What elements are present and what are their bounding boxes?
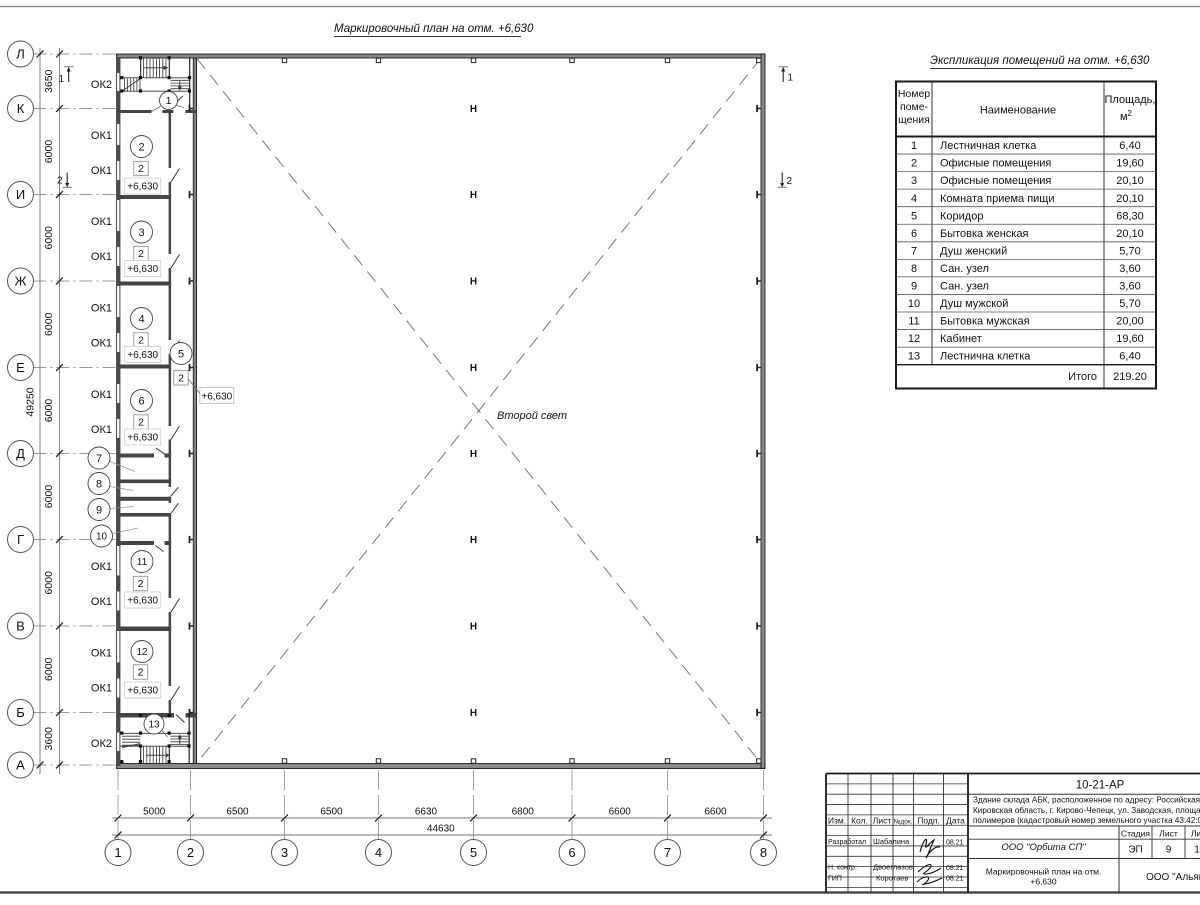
svg-text:11: 11: [137, 557, 148, 568]
svg-text:5: 5: [470, 845, 477, 860]
svg-text:11: 11: [908, 316, 919, 328]
svg-text:3: 3: [281, 845, 288, 860]
svg-text:12: 12: [136, 647, 148, 658]
svg-text:+6,630: +6,630: [127, 264, 158, 275]
svg-text:Н: Н: [470, 363, 477, 374]
svg-text:20,10: 20,10: [1116, 228, 1144, 240]
svg-text:Б: Б: [16, 705, 25, 720]
svg-text:Г: Г: [17, 532, 24, 547]
svg-text:6600: 6600: [704, 807, 727, 818]
svg-text:19,60: 19,60: [1116, 333, 1144, 345]
svg-text:3,60: 3,60: [1119, 281, 1140, 293]
svg-text:Лестнична клетка: Лестнична клетка: [940, 351, 1031, 363]
svg-text:+6,630: +6,630: [1030, 877, 1057, 887]
svg-text:8: 8: [96, 478, 102, 490]
svg-text:Офисные помещения: Офисные помещения: [940, 158, 1051, 170]
svg-text:Бытовка мужская: Бытовка мужская: [940, 316, 1030, 328]
svg-text:Е: Е: [16, 360, 25, 375]
svg-text:Подп.: Подп.: [917, 816, 940, 826]
svg-text:219.20: 219.20: [1113, 371, 1147, 383]
svg-text:Н. контр.: Н. контр.: [828, 865, 857, 872]
svg-text:6000: 6000: [43, 485, 55, 509]
svg-text:Двоеглазов: Двоеглазов: [873, 863, 913, 872]
svg-text:5,70: 5,70: [1119, 298, 1140, 310]
svg-text:2: 2: [178, 373, 184, 385]
svg-text:10: 10: [908, 298, 920, 310]
svg-text:10: 10: [96, 532, 108, 543]
svg-text:6000: 6000: [43, 140, 55, 164]
svg-text:ОК1: ОК1: [91, 683, 112, 695]
svg-text:Душ женский: Душ женский: [940, 245, 1007, 257]
svg-text:ОК1: ОК1: [91, 338, 112, 350]
svg-text:Итого: Итого: [1068, 371, 1097, 383]
svg-text:+6,630: +6,630: [127, 182, 158, 193]
svg-text:Н: Н: [470, 449, 477, 460]
svg-text:2: 2: [138, 578, 144, 590]
svg-text:+6,630: +6,630: [201, 392, 232, 403]
svg-text:Лист: Лист: [1159, 829, 1178, 839]
svg-text:1: 1: [1194, 845, 1200, 856]
svg-text:Номер: Номер: [898, 88, 930, 100]
svg-text:Н: Н: [470, 104, 477, 115]
svg-text:Н: Н: [470, 622, 477, 633]
svg-text:2: 2: [57, 176, 63, 187]
svg-text:ОК1: ОК1: [91, 424, 112, 436]
svg-text:Кабинет: Кабинет: [940, 333, 982, 345]
svg-text:2: 2: [138, 141, 144, 153]
svg-text:4: 4: [375, 845, 382, 860]
svg-text:ОК2: ОК2: [91, 738, 112, 750]
svg-text:щения: щения: [898, 114, 930, 126]
svg-text:6,40: 6,40: [1119, 351, 1140, 363]
svg-text:ООО "Орбита СП": ООО "Орбита СП": [1001, 842, 1086, 853]
svg-text:+6,630: +6,630: [127, 433, 158, 444]
svg-text:7: 7: [911, 245, 917, 257]
svg-text:Душ мужской: Душ мужской: [940, 298, 1008, 310]
svg-text:1: 1: [166, 95, 172, 107]
svg-text:6600: 6600: [609, 807, 632, 818]
svg-text:4: 4: [138, 313, 144, 325]
svg-text:13: 13: [908, 351, 920, 363]
svg-text:5,70: 5,70: [1119, 245, 1140, 257]
svg-text:ОК1: ОК1: [91, 216, 112, 228]
svg-text:Дата: Дата: [946, 816, 965, 826]
svg-text:ОК1: ОК1: [91, 165, 112, 177]
svg-text:ОК1: ОК1: [91, 648, 112, 660]
svg-text:6: 6: [568, 845, 575, 860]
svg-text:6800: 6800: [512, 807, 535, 818]
svg-text:20,10: 20,10: [1116, 175, 1144, 187]
svg-text:+6,630: +6,630: [127, 686, 158, 697]
svg-text:7: 7: [96, 453, 102, 465]
svg-text:Лестничная клетка: Лестничная клетка: [940, 140, 1037, 152]
svg-text:ОК1: ОК1: [91, 303, 112, 315]
svg-text:9: 9: [96, 504, 102, 516]
svg-text:19,60: 19,60: [1116, 158, 1144, 170]
svg-text:6630: 6630: [415, 807, 438, 818]
svg-text:Второй свет: Второй свет: [497, 410, 567, 422]
svg-text:10-21-АР: 10-21-АР: [1076, 780, 1125, 792]
svg-text:Маркировочный план на отм.: Маркировочный план на отм.: [986, 867, 1102, 877]
svg-text:6,40: 6,40: [1119, 140, 1140, 152]
svg-text:Коридор: Коридор: [940, 210, 983, 222]
svg-text:И: И: [16, 187, 25, 202]
svg-text:Кол.: Кол.: [851, 816, 868, 826]
svg-text:6000: 6000: [43, 657, 55, 681]
svg-text:1: 1: [114, 845, 121, 860]
svg-text:7: 7: [664, 845, 671, 860]
svg-text:Разработал: Разработал: [828, 838, 866, 846]
svg-text:ОК2: ОК2: [91, 79, 112, 91]
svg-text:6: 6: [911, 228, 917, 240]
svg-text:5000: 5000: [143, 807, 166, 818]
svg-text:Экспликация помещений на отм.: Экспликация помещений на отм. +6,630: [930, 55, 1150, 67]
svg-text:К: К: [17, 101, 25, 116]
svg-text:Площадь,: Площадь,: [1105, 94, 1156, 106]
svg-text:20,00: 20,00: [1116, 316, 1144, 328]
svg-text:+6,630: +6,630: [127, 596, 158, 607]
svg-text:Шабалина: Шабалина: [873, 837, 910, 846]
svg-text:08.21: 08.21: [946, 876, 964, 883]
svg-text:Сан. узел: Сан. узел: [940, 281, 989, 293]
svg-text:6: 6: [138, 395, 144, 407]
svg-text:Коротаев: Коротаев: [876, 874, 908, 883]
svg-text:Н: Н: [470, 277, 477, 288]
svg-text:ЭП: ЭП: [1128, 845, 1142, 856]
svg-text:Н: Н: [470, 708, 477, 719]
svg-text:2: 2: [911, 158, 917, 170]
svg-text:5: 5: [178, 348, 184, 360]
svg-text:1: 1: [911, 140, 917, 152]
svg-text:Маркировочный план на отм. +6,: Маркировочный план на отм. +6,630: [334, 23, 534, 35]
svg-text:2: 2: [187, 845, 194, 860]
svg-text:3600: 3600: [43, 727, 55, 751]
svg-text:№док.: №док.: [893, 819, 912, 826]
svg-text:Изм.: Изм.: [828, 816, 846, 826]
svg-text:3650: 3650: [43, 69, 55, 93]
svg-text:ООО "Альяно: ООО "Альяно: [1146, 872, 1200, 883]
svg-text:8: 8: [760, 845, 767, 860]
svg-text:Бытовка женская: Бытовка женская: [940, 228, 1028, 240]
svg-text:2: 2: [138, 248, 144, 260]
svg-text:Ли: Ли: [1191, 829, 1200, 839]
svg-text:08.21: 08.21: [946, 865, 964, 872]
svg-text:9: 9: [911, 281, 917, 293]
svg-text:6000: 6000: [43, 226, 55, 250]
svg-text:ОК1: ОК1: [91, 130, 112, 142]
svg-text:ГИП: ГИП: [828, 876, 842, 883]
svg-text:Наименование: Наименование: [980, 105, 1056, 117]
svg-text:5: 5: [911, 210, 917, 222]
svg-text:44630: 44630: [427, 824, 455, 835]
svg-text:9: 9: [1166, 845, 1172, 856]
svg-text:Офисные помещения: Офисные помещения: [940, 175, 1051, 187]
svg-text:Н: Н: [470, 535, 477, 546]
svg-text:3: 3: [911, 175, 917, 187]
svg-text:2: 2: [787, 176, 793, 187]
svg-text:12: 12: [908, 333, 920, 345]
svg-text:8: 8: [911, 263, 917, 275]
svg-text:Сан. узел: Сан. узел: [940, 263, 989, 275]
svg-text:Стадия: Стадия: [1121, 829, 1150, 839]
svg-text:2: 2: [138, 667, 144, 679]
svg-text:ОК1: ОК1: [91, 251, 112, 263]
svg-text:поме-: поме-: [900, 101, 929, 113]
svg-text:Л: Л: [16, 47, 25, 62]
svg-text:20,10: 20,10: [1116, 193, 1144, 205]
svg-text:6000: 6000: [43, 571, 55, 595]
svg-text:Ж: Ж: [14, 274, 26, 289]
svg-text:Д: Д: [16, 446, 25, 461]
svg-text:3: 3: [138, 227, 144, 239]
svg-text:2: 2: [138, 335, 144, 347]
svg-text:полимеров (кадастровый номер з: полимеров (кадастровый номер земельного …: [973, 816, 1200, 825]
svg-text:Комната приема пищи: Комната приема пищи: [940, 193, 1055, 205]
svg-text:1: 1: [58, 74, 64, 85]
svg-text:3,60: 3,60: [1119, 263, 1140, 275]
svg-text:6000: 6000: [43, 312, 55, 336]
svg-text:2: 2: [138, 163, 144, 175]
svg-text:ОК1: ОК1: [91, 389, 112, 401]
svg-text:4: 4: [911, 193, 917, 205]
svg-text:ОК1: ОК1: [91, 561, 112, 573]
svg-text:В: В: [16, 619, 25, 634]
svg-text:6500: 6500: [320, 807, 343, 818]
svg-text:49250: 49250: [25, 387, 37, 416]
svg-text:6000: 6000: [43, 399, 55, 423]
svg-text:Н: Н: [470, 190, 477, 201]
svg-text:6500: 6500: [226, 807, 249, 818]
svg-text:68,30: 68,30: [1116, 210, 1144, 222]
svg-text:А: А: [16, 758, 25, 773]
svg-text:2: 2: [138, 417, 144, 429]
svg-text:Лист: Лист: [873, 816, 892, 826]
svg-text:08.21: 08.21: [946, 840, 964, 847]
svg-text:ОК1: ОК1: [91, 596, 112, 608]
svg-text:1: 1: [788, 73, 794, 84]
svg-text:Здание склада АБК, расположенн: Здание склада АБК, расположенное по адре…: [973, 796, 1200, 805]
svg-text:Кировская область, г. Кирово-Ч: Кировская область, г. Кирово-Чепецк, ул.…: [973, 806, 1200, 815]
svg-text:+6,630: +6,630: [127, 350, 158, 361]
svg-text:13: 13: [148, 720, 160, 731]
